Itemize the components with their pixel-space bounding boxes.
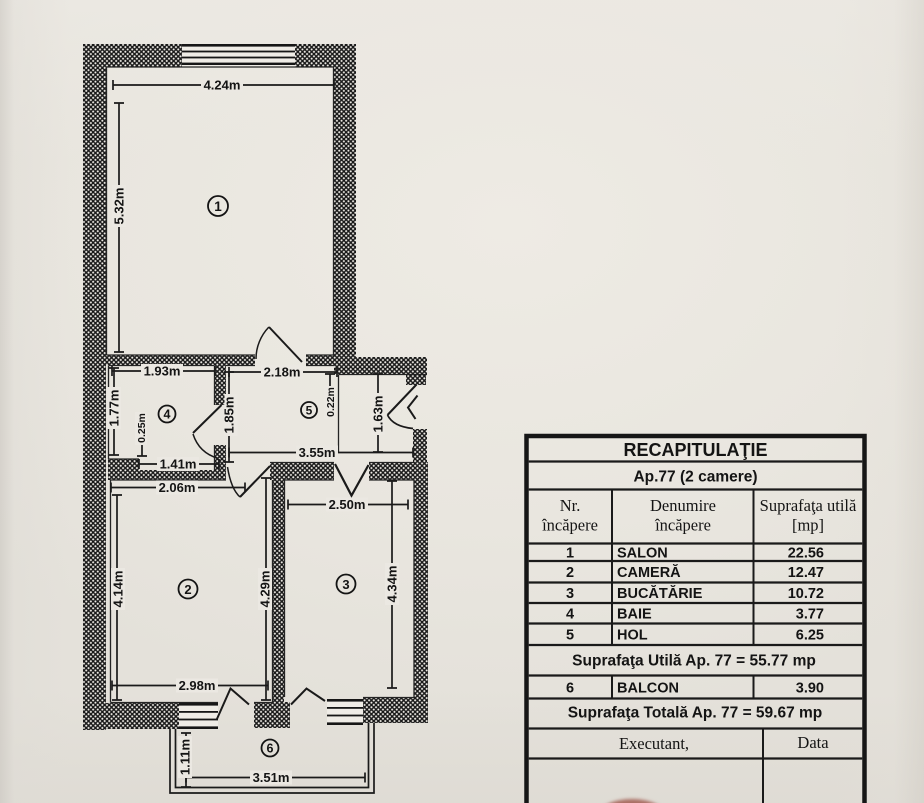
svg-text:10.72: 10.72 <box>788 586 824 602</box>
svg-text:1.85m: 1.85m <box>222 397 237 434</box>
svg-text:2.18m: 2.18m <box>264 365 301 380</box>
svg-text:Executant,: Executant, <box>619 734 689 753</box>
svg-text:1.63m: 1.63m <box>371 396 386 433</box>
svg-text:5: 5 <box>566 628 574 644</box>
svg-text:3.51m: 3.51m <box>253 770 290 785</box>
svg-text:încăpere: încăpere <box>654 516 711 535</box>
svg-text:3: 3 <box>342 577 349 592</box>
svg-text:4.24m: 4.24m <box>204 78 241 93</box>
svg-text:4.34m: 4.34m <box>385 566 400 603</box>
svg-text:[mp]: [mp] <box>792 516 824 535</box>
svg-text:2.50m: 2.50m <box>329 497 366 512</box>
svg-text:6: 6 <box>566 681 574 697</box>
svg-text:Suprafaţa Utilă Ap. 77 = 55.77: Suprafaţa Utilă Ap. 77 = 55.77 mp <box>572 653 816 670</box>
svg-text:4.29m: 4.29m <box>258 571 273 608</box>
svg-text:1.77m: 1.77m <box>107 390 122 427</box>
svg-text:încăpere: încăpere <box>541 516 598 535</box>
svg-text:2.06m: 2.06m <box>159 480 196 495</box>
svg-text:RECAPITULAŢIE: RECAPITULAŢIE <box>624 440 768 460</box>
svg-text:Ap.77 (2 camere): Ap.77 (2 camere) <box>633 469 757 486</box>
svg-text:3.90: 3.90 <box>796 681 824 697</box>
svg-text:4.14m: 4.14m <box>111 571 126 608</box>
svg-text:HOL: HOL <box>617 628 648 644</box>
svg-text:1.11m: 1.11m <box>178 739 193 775</box>
svg-text:1: 1 <box>566 546 574 562</box>
svg-text:12.47: 12.47 <box>788 565 824 581</box>
svg-text:6.25: 6.25 <box>796 628 824 644</box>
svg-text:3.55m: 3.55m <box>299 445 336 460</box>
svg-text:BUCĂTĂRIE: BUCĂTĂRIE <box>617 585 703 602</box>
svg-text:4: 4 <box>164 408 171 422</box>
svg-text:2.98m: 2.98m <box>179 678 216 693</box>
svg-text:Suprafaţa Totală Ap. 77 = 59.6: Suprafaţa Totală Ap. 77 = 59.67 mp <box>568 705 823 722</box>
svg-text:BAIE: BAIE <box>617 607 652 623</box>
svg-text:5: 5 <box>306 404 313 418</box>
svg-text:BALCON: BALCON <box>617 681 679 697</box>
svg-text:3.77: 3.77 <box>796 607 824 623</box>
svg-text:4: 4 <box>566 607 574 623</box>
svg-text:0.25m: 0.25m <box>136 413 148 443</box>
svg-text:3: 3 <box>566 586 574 602</box>
svg-text:SALON: SALON <box>617 546 668 562</box>
svg-text:5.32m: 5.32m <box>112 188 127 225</box>
svg-text:CAMERĂ: CAMERĂ <box>617 564 681 581</box>
svg-text:Data: Data <box>797 733 829 752</box>
svg-text:2: 2 <box>184 582 191 597</box>
svg-text:Suprafaţa utilă: Suprafaţa utilă <box>760 496 857 515</box>
svg-text:6: 6 <box>267 742 274 756</box>
svg-text:1: 1 <box>214 199 222 214</box>
svg-text:0.22m: 0.22m <box>325 387 337 417</box>
svg-text:1.93m: 1.93m <box>144 364 181 379</box>
svg-text:22.56: 22.56 <box>788 546 824 562</box>
svg-text:2: 2 <box>566 565 574 581</box>
svg-text:Denumire: Denumire <box>650 496 716 515</box>
svg-text:1.41m: 1.41m <box>160 457 197 472</box>
svg-text:Nr.: Nr. <box>560 496 581 515</box>
